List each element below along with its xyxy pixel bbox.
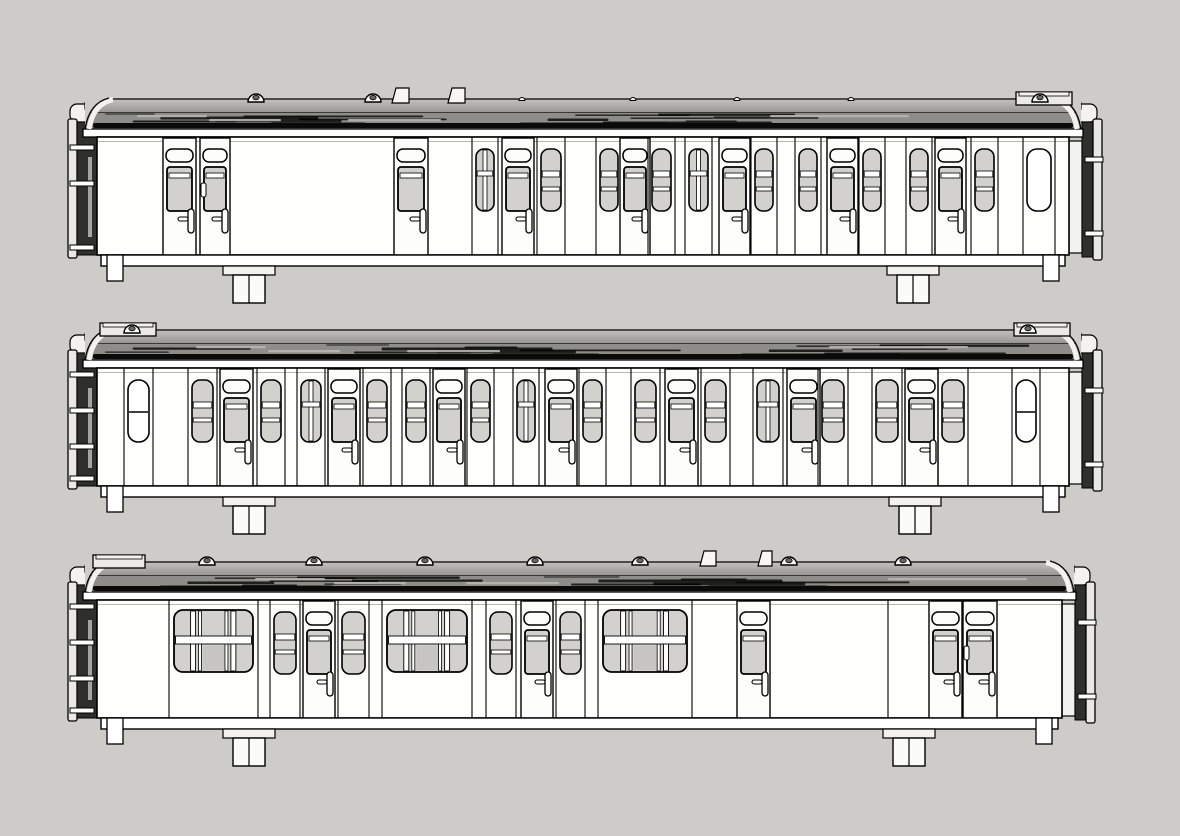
roof-highlight [268, 350, 340, 352]
grab-handle [954, 672, 960, 696]
cantrail-gutter [83, 592, 1076, 600]
glazing-bar [407, 418, 425, 422]
glazing-bar [706, 418, 725, 422]
center-mullion [766, 381, 770, 441]
battery-box-flange [223, 497, 275, 506]
grab-handle [327, 672, 333, 696]
two-pane-window [476, 149, 494, 211]
quarter-window [367, 380, 387, 442]
end-step [1085, 157, 1103, 162]
sliding-vent-bar [636, 402, 655, 408]
small-roof-vent [630, 98, 636, 101]
grab-handle [545, 672, 551, 696]
droplight-vent-slit [527, 636, 547, 641]
glazing-bar [491, 650, 511, 654]
window-glass [541, 149, 561, 211]
glazing-bar [193, 418, 212, 422]
end-step-bracket [1043, 486, 1059, 512]
vent-cowl [129, 326, 135, 330]
sliding-vent-bar [491, 634, 511, 640]
center-mullion [309, 381, 313, 441]
grab-handle [642, 209, 648, 233]
carriage-drawing-canvas [0, 0, 1180, 836]
end-plate [1093, 350, 1102, 491]
roof-top [85, 330, 1081, 344]
door [935, 138, 966, 255]
glazing-bar [800, 187, 816, 191]
quarter-window [541, 149, 561, 211]
end-handrail [88, 157, 92, 237]
grab-handle [245, 440, 251, 464]
lavatory-window [128, 380, 149, 442]
small-roof-vent [848, 98, 854, 101]
two-pane-window [517, 380, 535, 442]
droplight-vent-slit [309, 636, 329, 641]
roof-highlight [209, 119, 281, 121]
battery-box-flange [223, 266, 275, 275]
quarter-window [755, 149, 773, 211]
grab-handle [352, 440, 358, 464]
door-vent-hood [548, 380, 574, 393]
end-plate [1093, 119, 1102, 260]
door-handle [212, 217, 222, 221]
end-corner-sheet [1062, 604, 1075, 716]
end-plate [1086, 582, 1095, 723]
window-glass [560, 612, 581, 674]
door-vent-hood [436, 380, 462, 393]
quarter-window [261, 380, 281, 442]
solebar-step-board [101, 718, 1058, 729]
end-step [70, 676, 94, 681]
quarter-window [652, 149, 671, 211]
droplight-vent-slit [969, 636, 991, 641]
glazing-bar [877, 418, 897, 422]
window-glass [799, 149, 817, 211]
vent-cowl [422, 558, 428, 562]
solebar-step-board [101, 255, 1065, 266]
door [719, 138, 750, 255]
droplight-vent-slit [226, 404, 247, 409]
quarter-window [799, 149, 817, 211]
door [737, 601, 770, 718]
sliding-vent-bar [864, 171, 880, 177]
door [827, 138, 858, 255]
window-glass [1027, 149, 1051, 211]
quarter-window [975, 149, 994, 211]
quarter-window [192, 380, 213, 442]
end-wall [77, 122, 97, 255]
roof-streak [630, 118, 713, 119]
door [200, 138, 230, 255]
roof-shadow-band [93, 123, 1073, 128]
window-glass [192, 380, 213, 442]
end-step [70, 708, 94, 713]
grab-handle [762, 672, 768, 696]
end-corner-sheet [1069, 372, 1082, 484]
door-handle [979, 680, 989, 684]
window-glass [705, 380, 726, 442]
droplight-vent-slit [206, 173, 224, 178]
grab-handle [457, 440, 463, 464]
door-vent-hood [166, 149, 193, 162]
roof-streak [681, 579, 747, 581]
sliding-vent-bar [601, 171, 617, 177]
door-vent-hood [966, 612, 994, 625]
vent-cowl [370, 95, 376, 99]
droplight-vent-slit [833, 173, 852, 178]
vent-cowl [311, 558, 317, 562]
grab-handle [930, 440, 936, 464]
sliding-vent-bar [368, 402, 386, 408]
door-vent-hood [505, 149, 531, 162]
window-glass [755, 149, 773, 211]
saloon-window [603, 610, 687, 672]
roof [83, 323, 1083, 368]
roof-streak [465, 347, 518, 349]
sliding-vent-bar [911, 171, 927, 177]
droplight-vent-slit [334, 404, 354, 409]
door [163, 138, 196, 255]
window-glass [600, 149, 618, 211]
sliding-vent-bar [653, 171, 670, 177]
grab-handle [812, 440, 818, 464]
small-roof-vent [519, 98, 525, 101]
roof-highlight [334, 582, 406, 584]
droplight-catch [201, 183, 206, 197]
door-handle [802, 448, 812, 452]
center-mullion [483, 150, 487, 210]
door-handle [535, 680, 545, 684]
end-plate [68, 582, 77, 721]
end-plate [68, 119, 77, 258]
droplight-vent-slit [935, 636, 956, 641]
end-step [70, 444, 94, 449]
roof-streak [686, 121, 737, 122]
roof-streak [326, 345, 389, 346]
grab-handle [188, 209, 194, 233]
end-step [70, 245, 94, 250]
door-vent-hood [203, 149, 227, 162]
window-glass [975, 149, 994, 211]
vent-cowl [204, 558, 210, 562]
roof-streak [105, 352, 169, 353]
window-glass [342, 612, 365, 674]
door-vent-hood [908, 380, 935, 393]
roof-highlight [466, 582, 559, 584]
window-glass [471, 380, 490, 442]
glazing-bar [864, 187, 880, 191]
vent-cowl [1037, 95, 1043, 99]
sliding-vent-bar [800, 171, 816, 177]
door-vent-hood [524, 612, 550, 625]
glazing-bar [911, 187, 927, 191]
door [545, 369, 577, 486]
sliding-vent-bar [275, 634, 295, 640]
vent-cowl [1025, 326, 1031, 330]
vent-cowl [900, 558, 906, 562]
roof-streak [544, 577, 620, 578]
door-handle [516, 217, 526, 221]
end-wall [1082, 122, 1093, 257]
end-step [1085, 388, 1103, 393]
quarter-window [600, 149, 618, 211]
droplight-catch [964, 646, 969, 660]
roof-streak [520, 350, 681, 352]
sliding-vent-bar [706, 402, 725, 408]
sliding-vent-bar [561, 634, 580, 640]
end-handrail [88, 620, 92, 700]
grab-handle [690, 440, 696, 464]
door-vent-hood [830, 149, 855, 162]
door-vent-hood [397, 149, 425, 162]
end-step [70, 408, 94, 413]
droplight-vent-slit [671, 404, 692, 409]
droplight-vent-slit [725, 173, 744, 178]
glazing-bar [976, 187, 993, 191]
sliding-vent-bar [877, 402, 897, 408]
door-vent-hood [623, 149, 647, 162]
glazing-bar [943, 418, 963, 422]
glazing-bar [343, 650, 364, 654]
door [929, 601, 962, 718]
center-mullion [524, 381, 528, 441]
window-glass [1016, 380, 1036, 442]
two-pane-window [301, 380, 321, 442]
quarter-window [910, 149, 928, 211]
roof-streak [547, 119, 608, 122]
door [394, 138, 428, 255]
cantrail-gutter [83, 360, 1083, 368]
sliding-vent-bar [823, 402, 843, 408]
glazing-bar [823, 418, 843, 422]
door-handle [317, 680, 327, 684]
roof-highlight [829, 346, 968, 348]
window-glass [863, 149, 881, 211]
door-handle [447, 448, 457, 452]
roof-highlight [770, 115, 909, 117]
model-viewport [0, 0, 1180, 836]
grab-handle [569, 440, 575, 464]
end-step-bracket [1036, 718, 1052, 744]
sliding-vent-bar [407, 402, 425, 408]
droplight-vent-slit [793, 404, 814, 409]
end-step [70, 476, 94, 481]
quarter-window [705, 380, 726, 442]
door-vent-hood [722, 149, 747, 162]
window-glass [406, 380, 426, 442]
roof-highlight [196, 346, 266, 348]
end-step [70, 640, 94, 645]
quarter-window [560, 612, 581, 674]
door [787, 369, 820, 486]
window-glass [876, 380, 898, 442]
quarter-window [583, 380, 602, 442]
door-vent-hood [790, 380, 817, 393]
roof-streak [769, 350, 843, 353]
droplight-vent-slit [551, 404, 571, 409]
grab-handle [958, 209, 964, 233]
vent-cowl [786, 558, 792, 562]
sliding-vent-bar [472, 402, 489, 408]
quarter-window [863, 149, 881, 211]
end-step-bracket [107, 486, 123, 512]
droplight-vent-slit [743, 636, 764, 641]
open-pane [634, 646, 657, 670]
battery-box-flange [223, 729, 275, 738]
window-glass [635, 380, 656, 442]
saloon-window [174, 610, 253, 672]
lavatory-window [1027, 149, 1051, 211]
battery-box-flange [887, 266, 939, 275]
end-step [70, 372, 94, 377]
door-vent-hood [668, 380, 695, 393]
grab-handle [420, 209, 426, 233]
end-step [1085, 231, 1103, 236]
transom-bar [389, 636, 466, 644]
roof-highlight [348, 119, 441, 121]
droplight-vent-slit [169, 173, 190, 178]
glazing-bar [275, 650, 295, 654]
roof-gutter-box-lip [96, 555, 142, 559]
door-handle [840, 217, 850, 221]
door-vent-hood [306, 612, 332, 625]
roof-highlight [407, 350, 500, 352]
sliding-vent-bar [756, 171, 772, 177]
vent-cowl [637, 558, 643, 562]
cantrail-gutter [83, 129, 1083, 137]
open-pane [417, 646, 439, 670]
door-vent-hood [938, 149, 963, 162]
door-vent-hood [740, 612, 767, 625]
window-glass [822, 380, 844, 442]
sliding-vent-bar [343, 634, 364, 640]
roof-shadow-band [93, 354, 1073, 359]
end-step [1078, 620, 1096, 625]
glazing-bar [601, 187, 617, 191]
glazing-bar [542, 187, 560, 191]
quarter-window [471, 380, 490, 442]
door [433, 369, 465, 486]
roof-streak [105, 114, 155, 115]
door-vent-hood [932, 612, 959, 625]
sliding-vent-bar [262, 402, 280, 408]
end-wall [1082, 353, 1093, 488]
door-handle [410, 217, 420, 221]
end-step-bracket [1043, 255, 1059, 281]
sliding-vent-bar [302, 402, 320, 407]
glazing-bar [472, 418, 489, 422]
door [963, 601, 997, 718]
solebar-step-board [101, 486, 1065, 497]
quarter-window [822, 380, 844, 442]
droplight-vent-slit [941, 173, 960, 178]
window-glass [367, 380, 387, 442]
sliding-vent-bar [943, 402, 963, 408]
end-plate [68, 350, 77, 489]
glazing-bar [653, 187, 670, 191]
droplight-vent-slit [508, 173, 528, 178]
door-handle [178, 217, 188, 221]
quarter-window [342, 612, 365, 674]
end-step [1085, 462, 1103, 467]
door [220, 369, 253, 486]
quarter-window [490, 612, 512, 674]
quarter-window [274, 612, 296, 674]
window-glass [490, 612, 512, 674]
roof-highlight [137, 115, 207, 117]
door [521, 601, 553, 718]
window-glass [261, 380, 281, 442]
saloon-window [387, 610, 467, 672]
grab-handle [989, 672, 995, 696]
end-wall [1075, 585, 1086, 720]
battery-box-flange [883, 729, 935, 738]
glazing-bar [368, 418, 386, 422]
sliding-vent-bar [477, 171, 493, 176]
roof-streak [187, 582, 274, 585]
door [303, 601, 335, 718]
quarter-window [635, 380, 656, 442]
end-step [1078, 694, 1096, 699]
roof-highlight [888, 578, 1027, 580]
door-handle [235, 448, 245, 452]
roof-streak [243, 116, 423, 118]
small-roof-vent [734, 98, 740, 101]
droplight-vent-slit [439, 404, 459, 409]
end-step [70, 145, 94, 150]
door [502, 138, 534, 255]
end-step [70, 181, 94, 186]
two-pane-window [689, 149, 708, 211]
window-glass [942, 380, 964, 442]
door-handle [944, 680, 954, 684]
roof-top [85, 562, 1074, 576]
sliding-vent-bar [758, 402, 778, 407]
door [665, 369, 698, 486]
end-step-bracket [107, 255, 123, 281]
roof-streak [352, 580, 483, 582]
door [905, 369, 938, 486]
droplight-vent-slit [911, 404, 932, 409]
lavatory-window [1016, 380, 1036, 442]
center-mullion [697, 150, 701, 210]
end-corner-sheet [1069, 141, 1082, 253]
roof-streak [852, 349, 948, 350]
sliding-vent-bar [193, 402, 212, 408]
door-vent-hood [223, 380, 250, 393]
door-handle [680, 448, 690, 452]
end-handrail [88, 388, 92, 468]
transom-bar [176, 636, 252, 644]
open-pane [203, 646, 224, 670]
roof-streak [736, 582, 910, 584]
vent-cowl [253, 95, 259, 99]
window-glass [652, 149, 671, 211]
grab-handle [850, 209, 856, 233]
quarter-window [406, 380, 426, 442]
roof-shadow-band [93, 586, 1066, 591]
door-handle [948, 217, 958, 221]
sliding-vent-bar [584, 402, 601, 408]
transom-bar [605, 636, 686, 644]
two-pane-window [757, 380, 779, 442]
sliding-vent-bar [976, 171, 993, 177]
droplight-vent-slit [400, 173, 422, 178]
roof-highlight [255, 578, 325, 580]
end-step [70, 604, 94, 609]
door [620, 138, 650, 255]
glazing-bar [636, 418, 655, 422]
